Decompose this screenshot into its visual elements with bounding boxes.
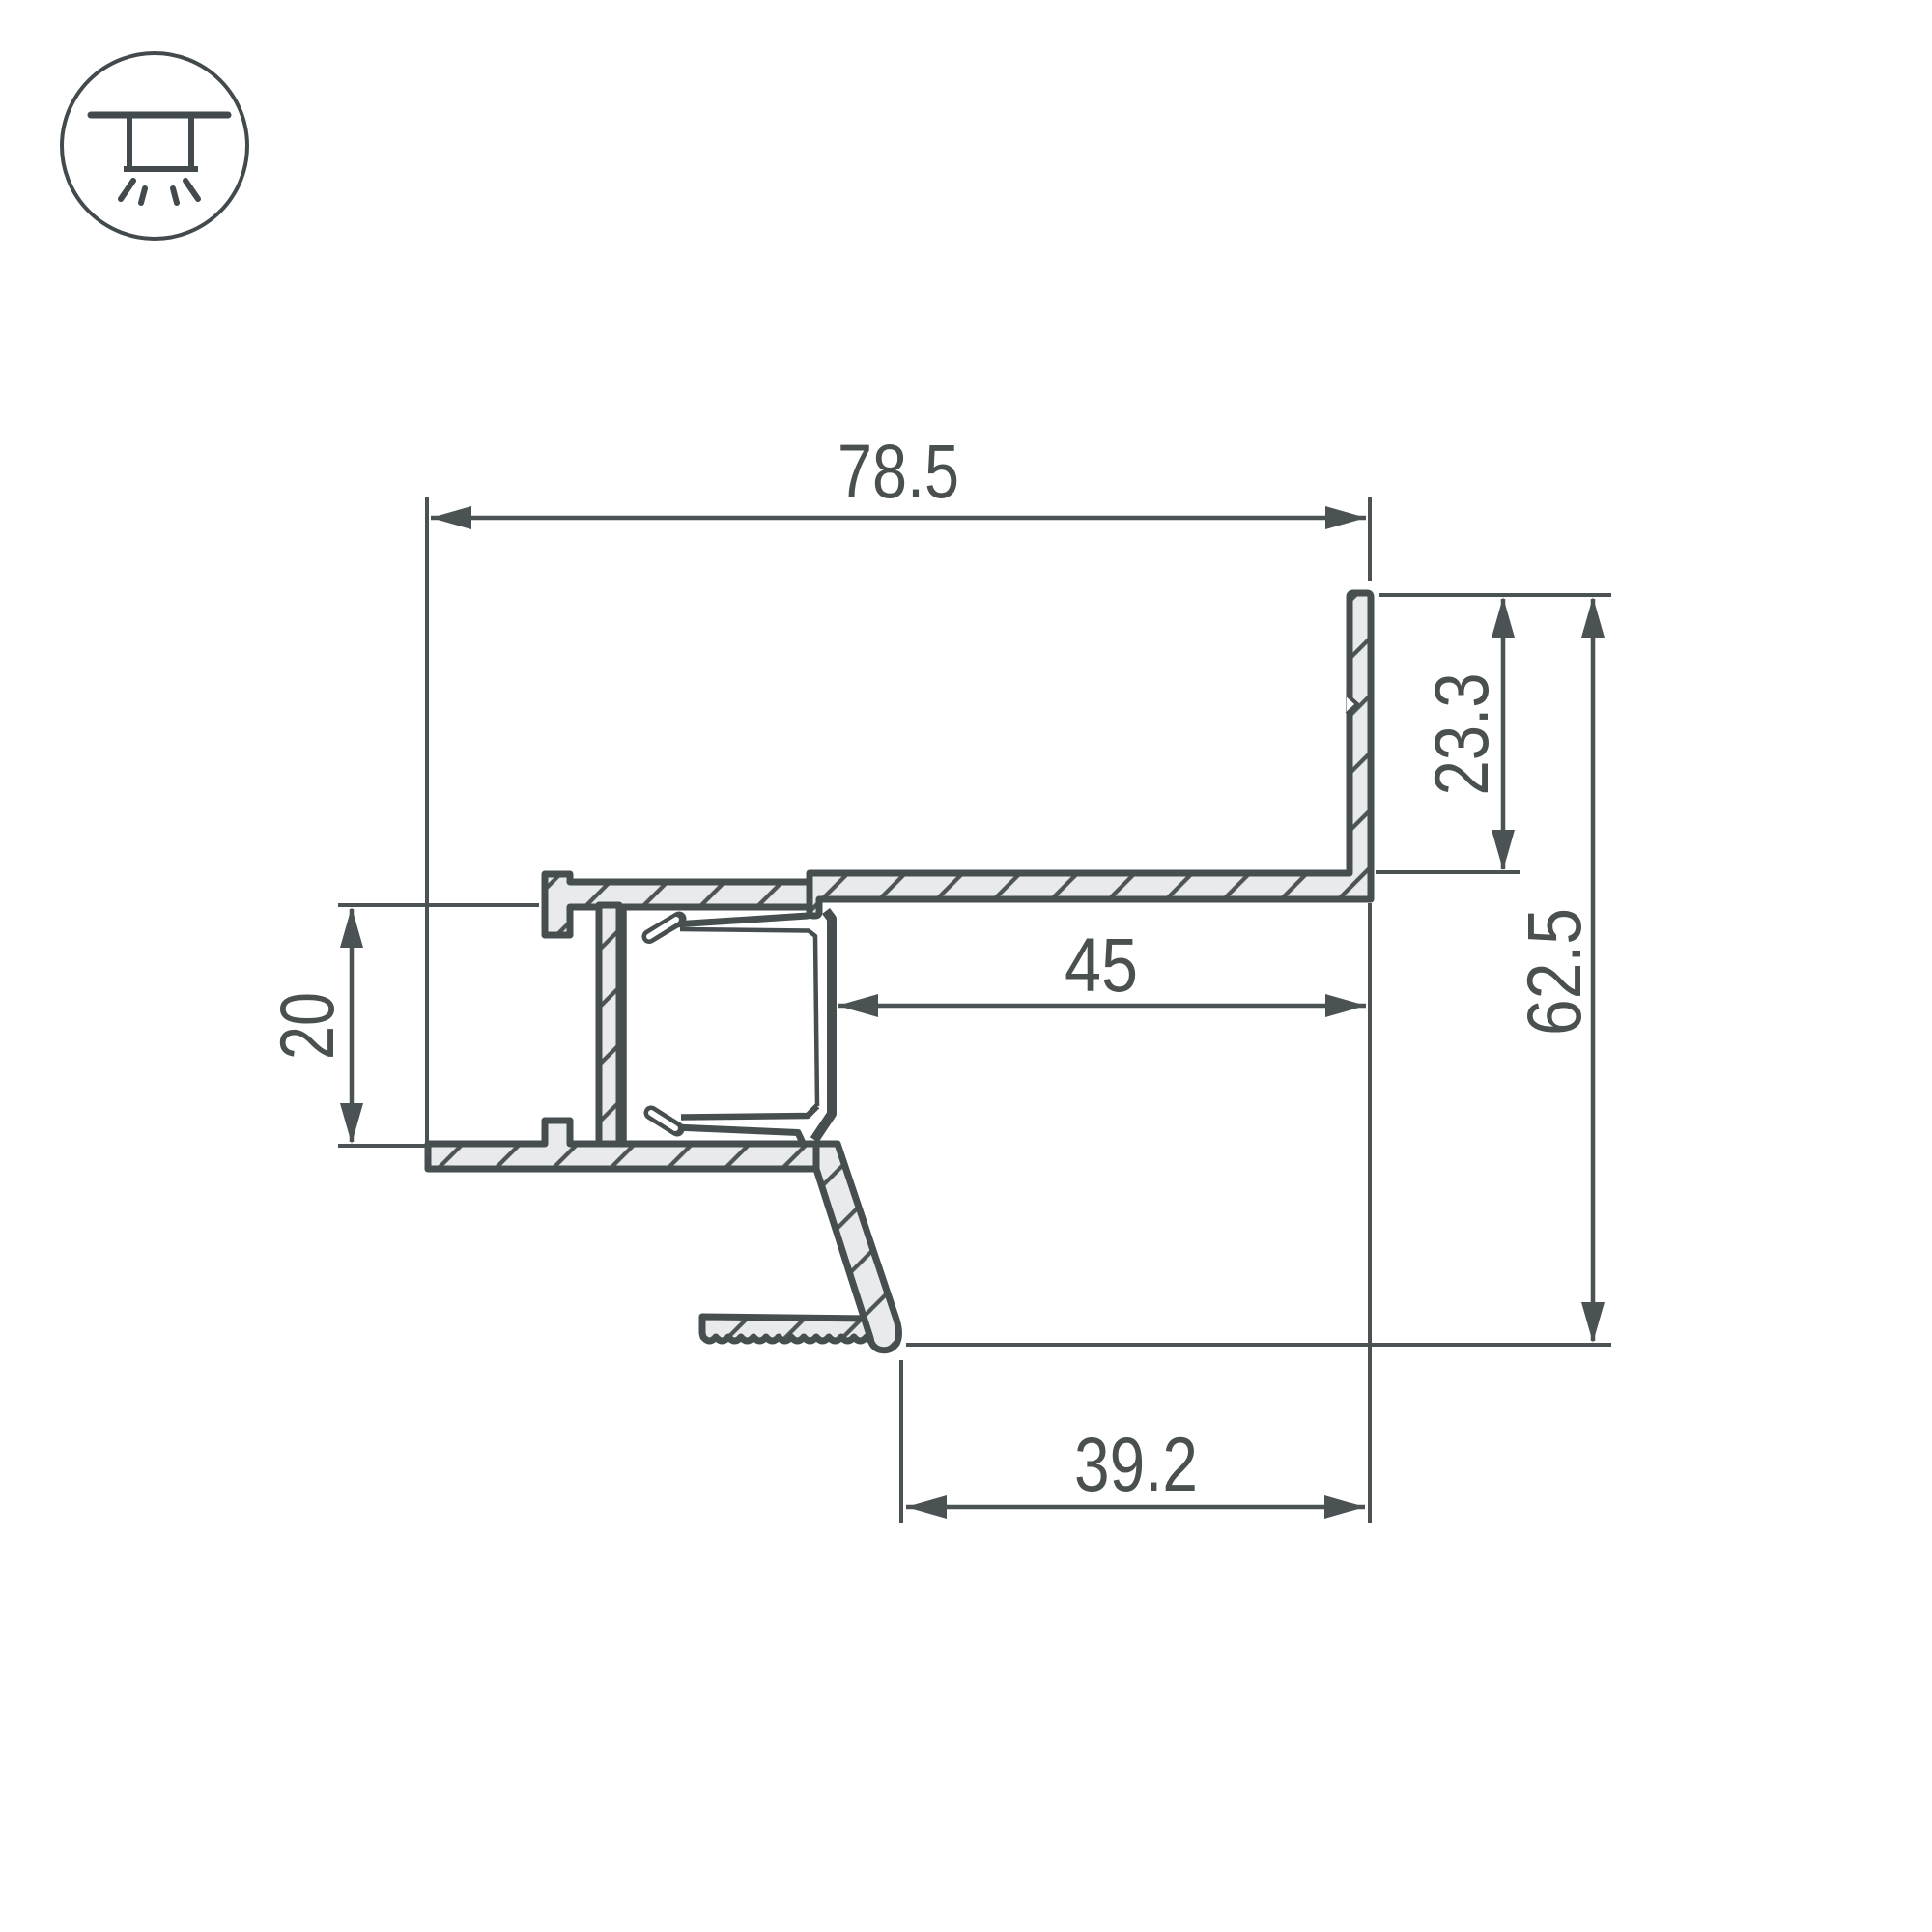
svg-text:23.3: 23.3 <box>1418 673 1504 796</box>
svg-text:45: 45 <box>1065 922 1138 1008</box>
svg-text:20: 20 <box>264 992 350 1060</box>
svg-text:78.5: 78.5 <box>838 428 959 514</box>
svg-text:62.5: 62.5 <box>1511 908 1597 1036</box>
svg-text:39.2: 39.2 <box>1074 1421 1198 1507</box>
